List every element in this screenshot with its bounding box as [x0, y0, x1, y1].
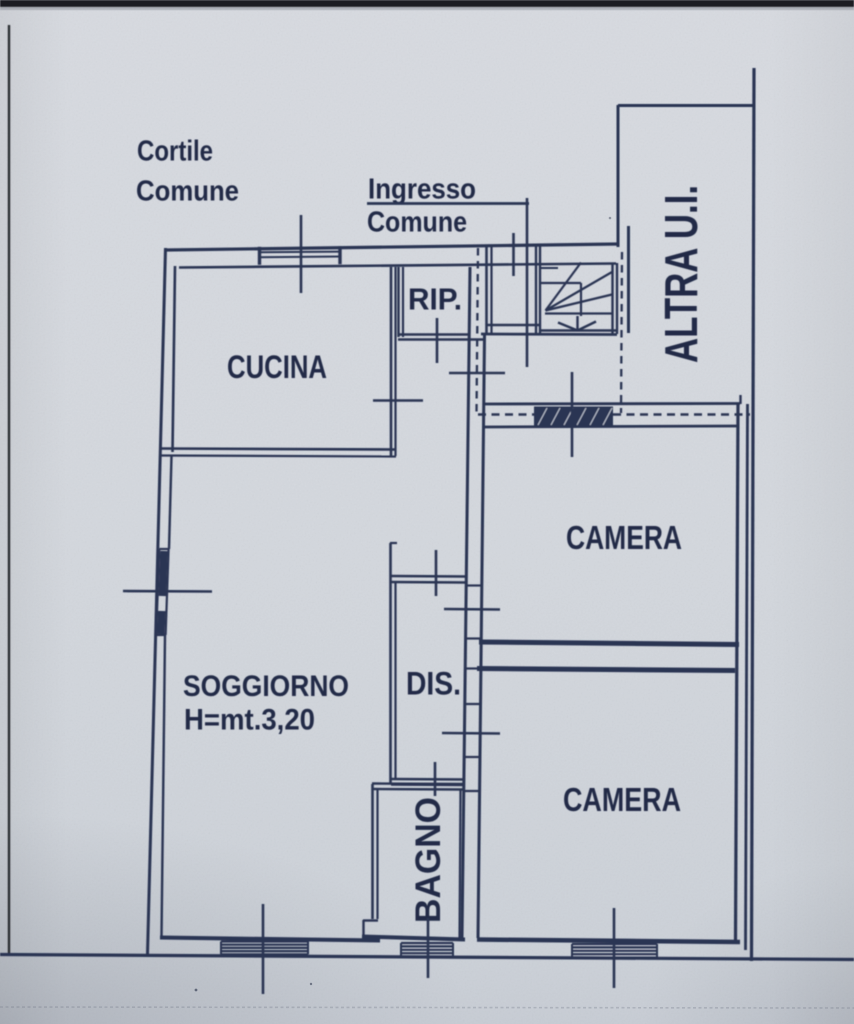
- svg-text:Comune: Comune: [367, 207, 467, 239]
- svg-text:BAGNO: BAGNO: [409, 797, 448, 923]
- svg-text:CUCINA: CUCINA: [227, 349, 327, 385]
- svg-text:RIP.: RIP.: [408, 282, 462, 317]
- svg-text:Cortile: Cortile: [137, 136, 213, 168]
- svg-text:SOGGIORNO: SOGGIORNO: [183, 670, 349, 703]
- svg-text:CAMERA: CAMERA: [563, 781, 681, 818]
- svg-text:DIS.: DIS.: [406, 666, 461, 702]
- svg-text:Ingresso: Ingresso: [368, 174, 476, 206]
- svg-text:CAMERA: CAMERA: [566, 519, 682, 556]
- svg-text:Comune: Comune: [136, 176, 239, 208]
- svg-text:H=mt.3,20: H=mt.3,20: [184, 704, 315, 737]
- svg-text:ALTRA U.I.: ALTRA U.I.: [655, 185, 707, 363]
